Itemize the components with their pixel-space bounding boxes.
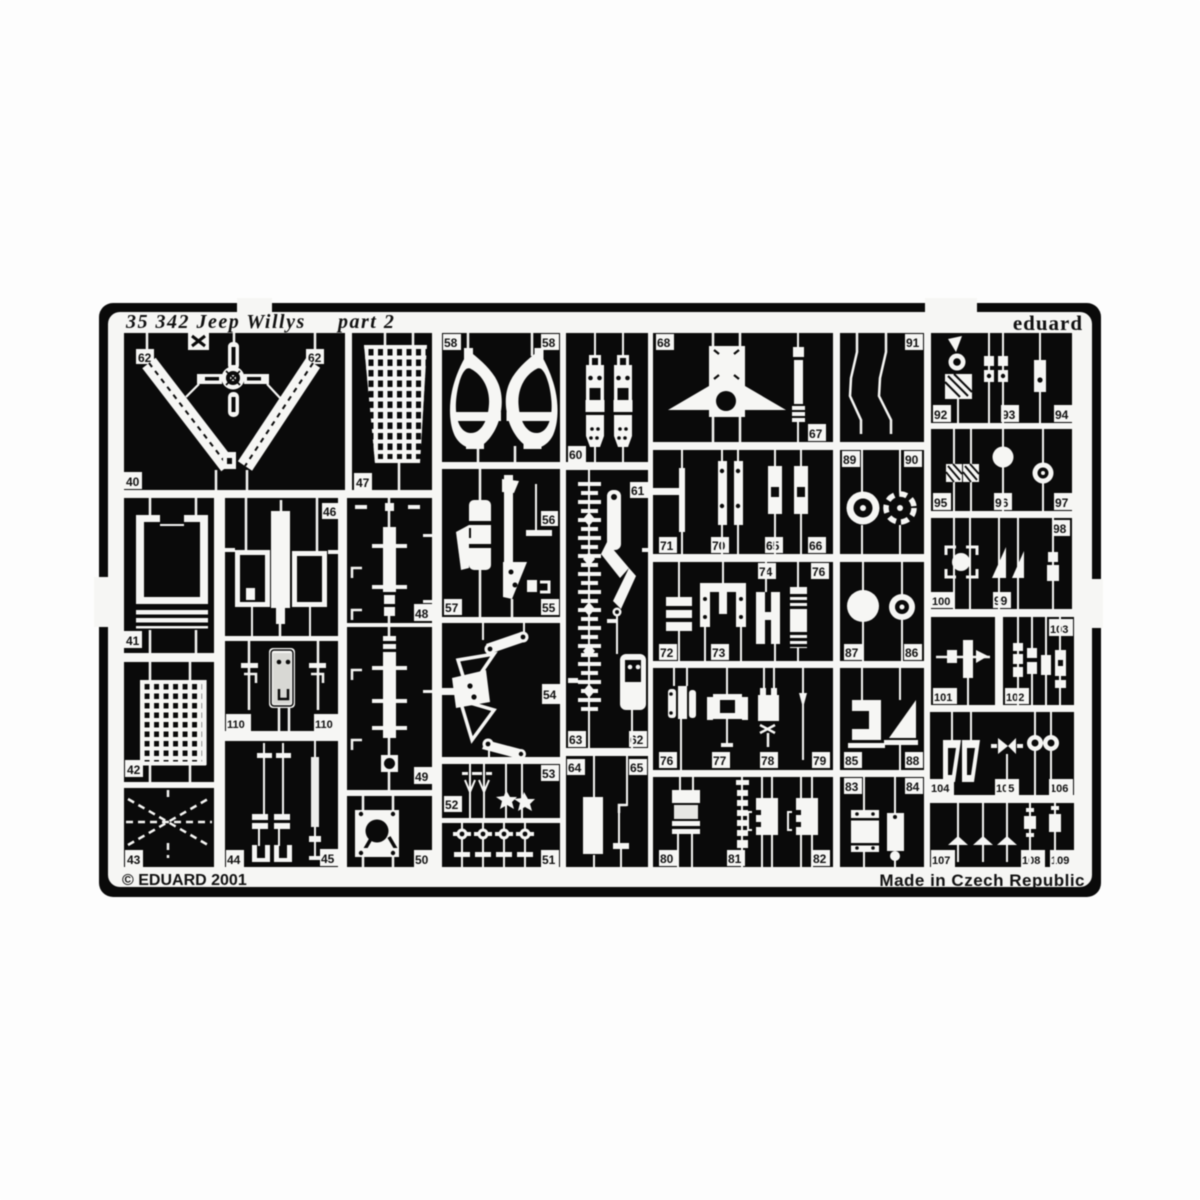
svg-text:108: 108 xyxy=(1022,855,1040,867)
svg-text:53: 53 xyxy=(542,767,556,781)
svg-text:80: 80 xyxy=(660,852,674,866)
svg-text:79: 79 xyxy=(813,754,827,768)
svg-text:82: 82 xyxy=(813,852,827,866)
svg-text:50: 50 xyxy=(415,853,429,867)
svg-text:49: 49 xyxy=(415,770,429,784)
svg-text:85: 85 xyxy=(845,754,859,768)
svg-text:46: 46 xyxy=(323,505,337,519)
svg-text:41: 41 xyxy=(126,634,140,648)
svg-text:58: 58 xyxy=(542,336,556,350)
svg-text:84: 84 xyxy=(906,780,920,794)
svg-text:88: 88 xyxy=(906,754,920,768)
svg-text:104: 104 xyxy=(931,783,950,795)
svg-text:57: 57 xyxy=(445,601,459,615)
svg-text:87: 87 xyxy=(845,646,859,660)
svg-text:54: 54 xyxy=(543,688,557,702)
svg-text:65: 65 xyxy=(630,761,644,775)
svg-text:© EDUARD 2001: © EDUARD 2001 xyxy=(122,872,247,889)
svg-text:63: 63 xyxy=(569,733,583,747)
svg-text:89: 89 xyxy=(843,453,857,467)
svg-text:61: 61 xyxy=(631,484,645,498)
svg-text:76: 76 xyxy=(812,565,826,579)
svg-text:73: 73 xyxy=(712,646,726,660)
svg-text:109: 109 xyxy=(1051,855,1069,867)
svg-text:106: 106 xyxy=(1050,783,1068,795)
svg-text:86: 86 xyxy=(905,646,919,660)
svg-text:90: 90 xyxy=(905,453,919,467)
svg-text:97: 97 xyxy=(1055,496,1069,510)
svg-text:101: 101 xyxy=(934,692,952,704)
svg-text:81: 81 xyxy=(728,852,742,866)
svg-text:94: 94 xyxy=(1055,408,1069,422)
svg-text:40: 40 xyxy=(126,475,140,489)
svg-text:35 342 Jeep Willys: 35 342 Jeep Willys xyxy=(125,311,306,333)
svg-text:78: 78 xyxy=(761,754,775,768)
svg-text:51: 51 xyxy=(542,853,556,867)
svg-text:58: 58 xyxy=(444,336,458,350)
svg-text:Made in Czech Republic: Made in Czech Republic xyxy=(879,871,1085,890)
svg-text:60: 60 xyxy=(569,448,583,462)
svg-text:68: 68 xyxy=(657,336,671,350)
svg-text:44: 44 xyxy=(227,853,241,867)
svg-text:64: 64 xyxy=(568,761,582,775)
svg-text:56: 56 xyxy=(542,513,556,527)
svg-text:45: 45 xyxy=(321,852,335,866)
svg-text:110: 110 xyxy=(227,719,245,731)
svg-text:eduard: eduard xyxy=(1013,311,1083,335)
svg-text:65: 65 xyxy=(766,539,780,553)
svg-text:110: 110 xyxy=(315,719,333,731)
svg-text:83: 83 xyxy=(845,780,859,794)
svg-text:43: 43 xyxy=(127,853,141,867)
svg-text:102: 102 xyxy=(1006,692,1024,704)
svg-text:52: 52 xyxy=(445,798,459,812)
svg-text:96: 96 xyxy=(995,496,1009,510)
svg-text:42: 42 xyxy=(127,763,141,777)
svg-text:92: 92 xyxy=(934,408,948,422)
svg-text:71: 71 xyxy=(660,539,674,553)
svg-text:72: 72 xyxy=(660,646,674,660)
svg-text:70: 70 xyxy=(712,539,726,553)
svg-text:100: 100 xyxy=(932,596,950,608)
svg-text:48: 48 xyxy=(415,607,429,621)
svg-text:99: 99 xyxy=(994,594,1008,608)
svg-text:part 2: part 2 xyxy=(336,311,395,333)
svg-text:47: 47 xyxy=(356,476,370,490)
svg-text:107: 107 xyxy=(932,855,950,867)
svg-text:67: 67 xyxy=(809,427,823,441)
svg-text:76: 76 xyxy=(660,754,674,768)
svg-text:93: 93 xyxy=(1002,408,1016,422)
svg-text:98: 98 xyxy=(1053,522,1067,536)
svg-text:66: 66 xyxy=(809,539,823,553)
svg-text:77: 77 xyxy=(713,754,727,768)
svg-text:91: 91 xyxy=(906,336,920,350)
svg-text:105: 105 xyxy=(996,783,1014,795)
svg-text:95: 95 xyxy=(934,496,948,510)
svg-text:55: 55 xyxy=(542,601,556,615)
